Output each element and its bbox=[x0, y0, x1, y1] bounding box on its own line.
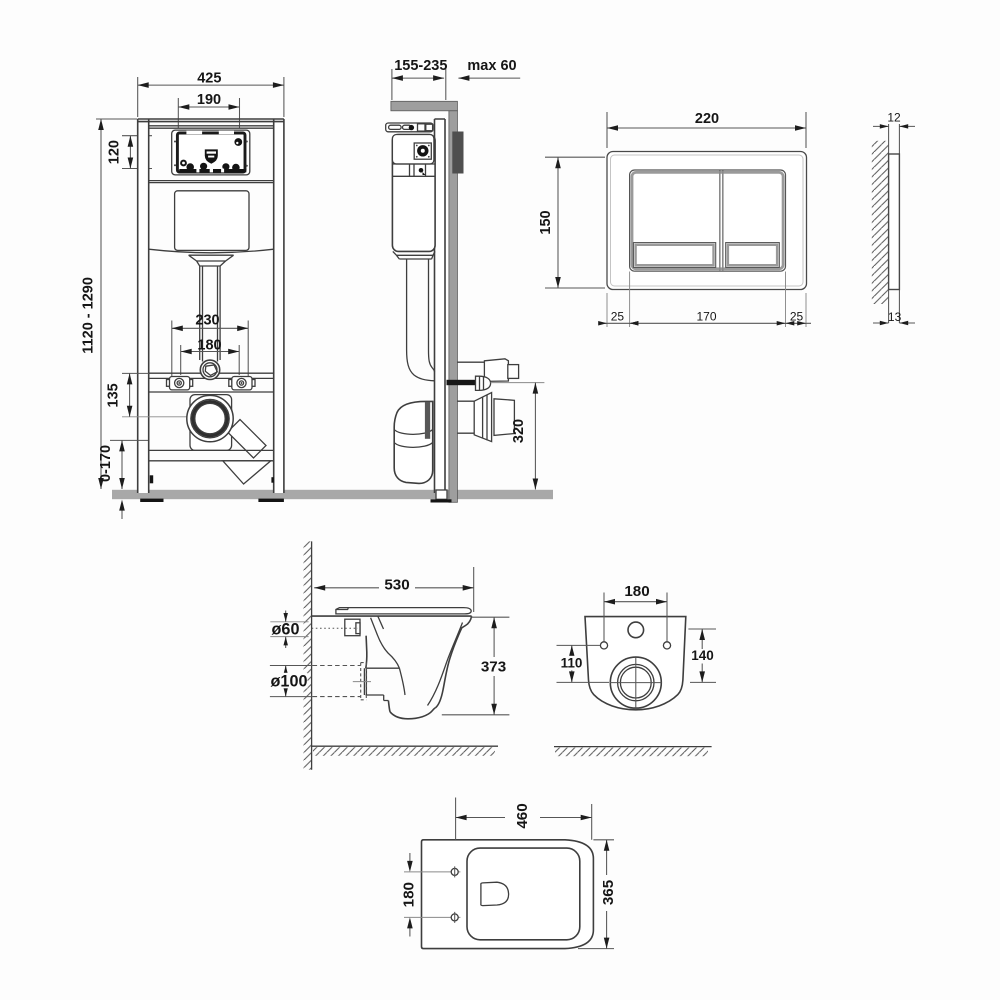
svg-text:190: 190 bbox=[197, 92, 221, 108]
svg-text:180: 180 bbox=[401, 882, 418, 907]
svg-text:180: 180 bbox=[624, 583, 649, 600]
svg-text:25: 25 bbox=[611, 309, 625, 323]
svg-text:140: 140 bbox=[691, 648, 714, 663]
svg-text:373: 373 bbox=[481, 659, 506, 676]
svg-text:135: 135 bbox=[105, 383, 121, 407]
svg-text:13: 13 bbox=[888, 310, 902, 324]
svg-text:max 60: max 60 bbox=[467, 58, 516, 74]
svg-text:ø100: ø100 bbox=[271, 673, 308, 691]
svg-text:110: 110 bbox=[561, 656, 583, 671]
svg-text:12: 12 bbox=[887, 111, 901, 125]
svg-text:170: 170 bbox=[696, 309, 716, 323]
svg-text:150: 150 bbox=[538, 210, 554, 234]
svg-text:230: 230 bbox=[195, 312, 219, 328]
svg-text:155-235: 155-235 bbox=[394, 58, 447, 74]
svg-text:1120 - 1290: 1120 - 1290 bbox=[81, 277, 97, 354]
svg-text:25: 25 bbox=[790, 309, 804, 323]
svg-text:530: 530 bbox=[384, 576, 409, 593]
svg-text:460: 460 bbox=[514, 803, 531, 828]
svg-text:320: 320 bbox=[511, 419, 527, 443]
svg-text:0-170: 0-170 bbox=[98, 445, 114, 482]
svg-text:365: 365 bbox=[600, 879, 617, 905]
svg-text:425: 425 bbox=[197, 70, 221, 86]
svg-text:ø60: ø60 bbox=[272, 621, 300, 639]
svg-text:120: 120 bbox=[107, 140, 123, 164]
svg-text:220: 220 bbox=[695, 111, 719, 127]
